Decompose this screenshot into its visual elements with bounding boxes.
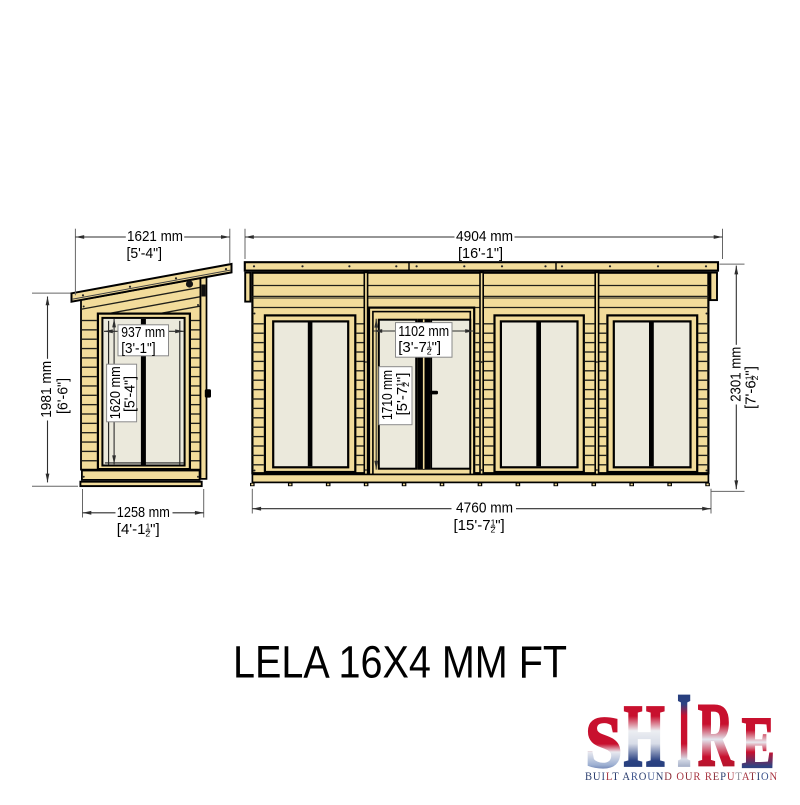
svg-text:[5'-4"]: [5'-4"] <box>122 376 139 412</box>
svg-text:4904 mm: 4904 mm <box>456 228 513 245</box>
svg-text:1981 mm: 1981 mm <box>38 361 55 418</box>
svg-text:BUILT AROUND OUR REPUTATION: BUILT AROUND OUR REPUTATION <box>585 769 778 783</box>
svg-text:[7'-612"]: [7'-612"] <box>743 366 760 409</box>
svg-text:[16'-1"]: [16'-1"] <box>458 245 503 262</box>
svg-text:1102 mm: 1102 mm <box>398 323 449 340</box>
svg-text:[3'-1"]: [3'-1"] <box>121 340 155 357</box>
svg-text:[5'-4"]: [5'-4"] <box>127 245 163 262</box>
svg-text:[15'-712"]: [15'-712"] <box>454 517 505 534</box>
svg-text:[6'-6"]: [6'-6"] <box>54 378 71 414</box>
svg-text:[4'-112"]: [4'-112"] <box>117 521 160 538</box>
svg-text:1258 mm: 1258 mm <box>117 504 170 521</box>
svg-text:1621 mm: 1621 mm <box>127 228 183 245</box>
svg-text:4760 mm: 4760 mm <box>456 500 513 517</box>
svg-text:[3'-712"]: [3'-712"] <box>398 339 441 356</box>
svg-text:[5'-712"]: [5'-712"] <box>394 373 411 416</box>
svg-text:937 mm: 937 mm <box>121 324 165 341</box>
svg-text:LELA 16X4 MM FT: LELA 16X4 MM FT <box>233 636 567 687</box>
